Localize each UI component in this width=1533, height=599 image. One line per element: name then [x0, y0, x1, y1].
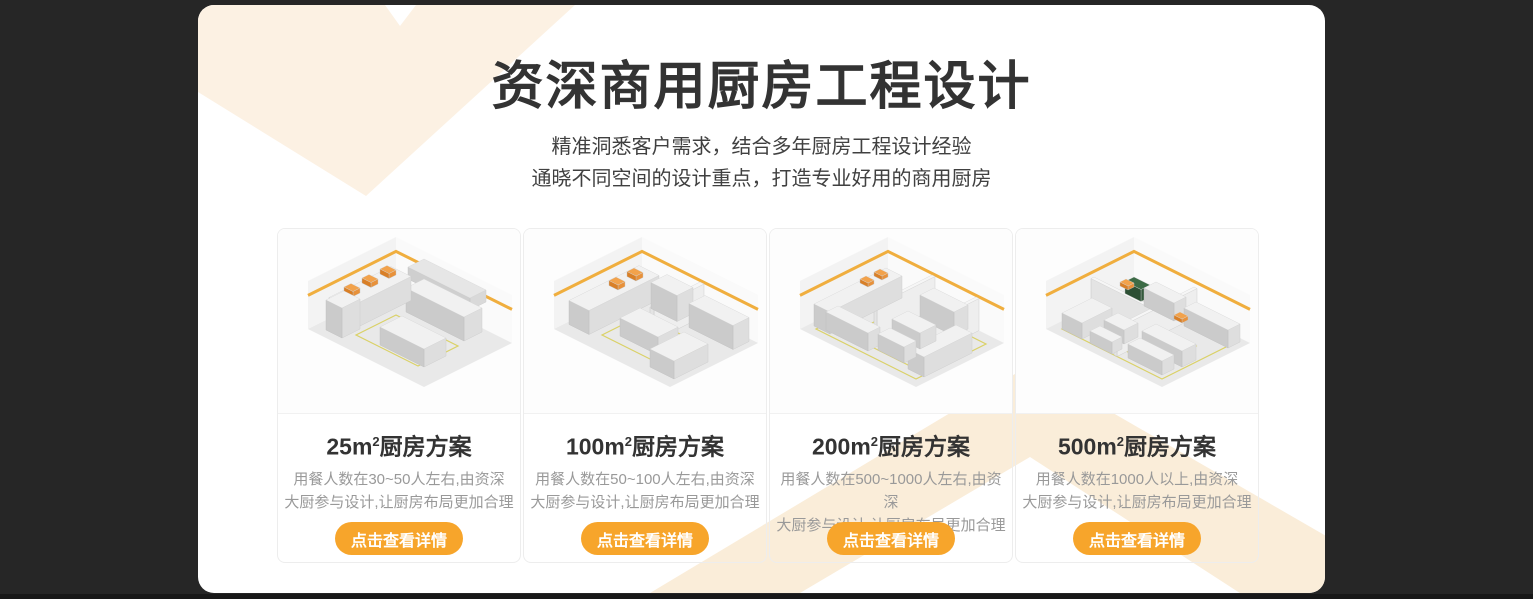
plan-title: 100m2厨房方案	[524, 427, 766, 462]
plan-title: 200m2厨房方案	[770, 427, 1012, 462]
plan-size-superscript: 2	[1117, 434, 1124, 449]
plan-size: 25m	[326, 434, 372, 460]
kitchen-render-image	[524, 229, 766, 414]
subtitle-line-1: 精准洞悉客户需求，结合多年厨房工程设计经验	[198, 131, 1325, 163]
plan-description-line-2: 大厨参与设计,让厨房布局更加合理	[530, 494, 759, 511]
plan-card: 200m2厨房方案 用餐人数在500~1000人左右,由资深 大厨参与设计,让厨…	[769, 228, 1013, 563]
plan-size-superscript: 2	[372, 434, 379, 449]
view-details-button[interactable]: 点击查看详情	[581, 522, 709, 555]
plan-title-suffix: 厨房方案	[380, 434, 472, 460]
plan-size-superscript: 2	[625, 434, 632, 449]
plan-title-suffix: 厨房方案	[878, 434, 970, 460]
kitchen-render-image	[1016, 229, 1258, 414]
kitchen-isometric-graphic	[278, 229, 520, 412]
kitchen-isometric-graphic	[1016, 229, 1258, 412]
plan-size-superscript: 2	[871, 434, 878, 449]
plan-description-line-1: 用餐人数在500~1000人左右,由资深	[780, 471, 1001, 511]
plan-description-line-2: 大厨参与设计,让厨房布局更加合理	[1022, 494, 1251, 511]
plan-description: 用餐人数在30~50人左右,由资深 大厨参与设计,让厨房布局更加合理	[284, 468, 514, 514]
plan-description-line-1: 用餐人数在1000人以上,由资深	[1036, 471, 1239, 488]
page-title: 资深商用厨房工程设计	[198, 57, 1325, 117]
kitchen-render-image	[770, 229, 1012, 414]
plan-description: 用餐人数在1000人以上,由资深 大厨参与设计,让厨房布局更加合理	[1022, 468, 1252, 514]
subtitle-line-2: 通晓不同空间的设计重点，打造专业好用的商用厨房	[198, 163, 1325, 195]
plan-description-line-2: 大厨参与设计,让厨房布局更加合理	[284, 494, 513, 511]
plans-row: 25m2厨房方案 用餐人数在30~50人左右,由资深 大厨参与设计,让厨房布局更…	[277, 228, 1259, 563]
plan-card: 500m2厨房方案 用餐人数在1000人以上,由资深 大厨参与设计,让厨房布局更…	[1015, 228, 1259, 563]
plan-description-line-1: 用餐人数在30~50人左右,由资深	[293, 471, 504, 488]
plan-card: 100m2厨房方案 用餐人数在50~100人左右,由资深 大厨参与设计,让厨房布…	[523, 228, 767, 563]
plan-description: 用餐人数在50~100人左右,由资深 大厨参与设计,让厨房布局更加合理	[530, 468, 760, 514]
kitchen-isometric-graphic	[770, 229, 1012, 412]
plan-title: 500m2厨房方案	[1016, 427, 1258, 462]
plan-size: 500m	[1058, 434, 1117, 460]
plan-title-suffix: 厨房方案	[1124, 434, 1216, 460]
page-bottom-edge	[0, 594, 1533, 599]
plan-size: 200m	[812, 434, 871, 460]
plan-title: 25m2厨房方案	[278, 427, 520, 462]
kitchen-render-image	[278, 229, 520, 414]
view-details-button[interactable]: 点击查看详情	[827, 522, 955, 555]
kitchen-isometric-graphic	[524, 229, 766, 412]
plan-description-line-1: 用餐人数在50~100人左右,由资深	[535, 471, 755, 488]
plan-title-suffix: 厨房方案	[632, 434, 724, 460]
plan-size: 100m	[566, 434, 625, 460]
plan-card: 25m2厨房方案 用餐人数在30~50人左右,由资深 大厨参与设计,让厨房布局更…	[277, 228, 521, 563]
view-details-button[interactable]: 点击查看详情	[1073, 522, 1201, 555]
view-details-button[interactable]: 点击查看详情	[335, 522, 463, 555]
page: { "theme": { "background": "#262626", "p…	[0, 0, 1533, 599]
content-panel: 资深商用厨房工程设计 精准洞悉客户需求，结合多年厨房工程设计经验 通晓不同空间的…	[198, 5, 1325, 593]
page-subtitle: 精准洞悉客户需求，结合多年厨房工程设计经验 通晓不同空间的设计重点，打造专业好用…	[198, 131, 1325, 195]
